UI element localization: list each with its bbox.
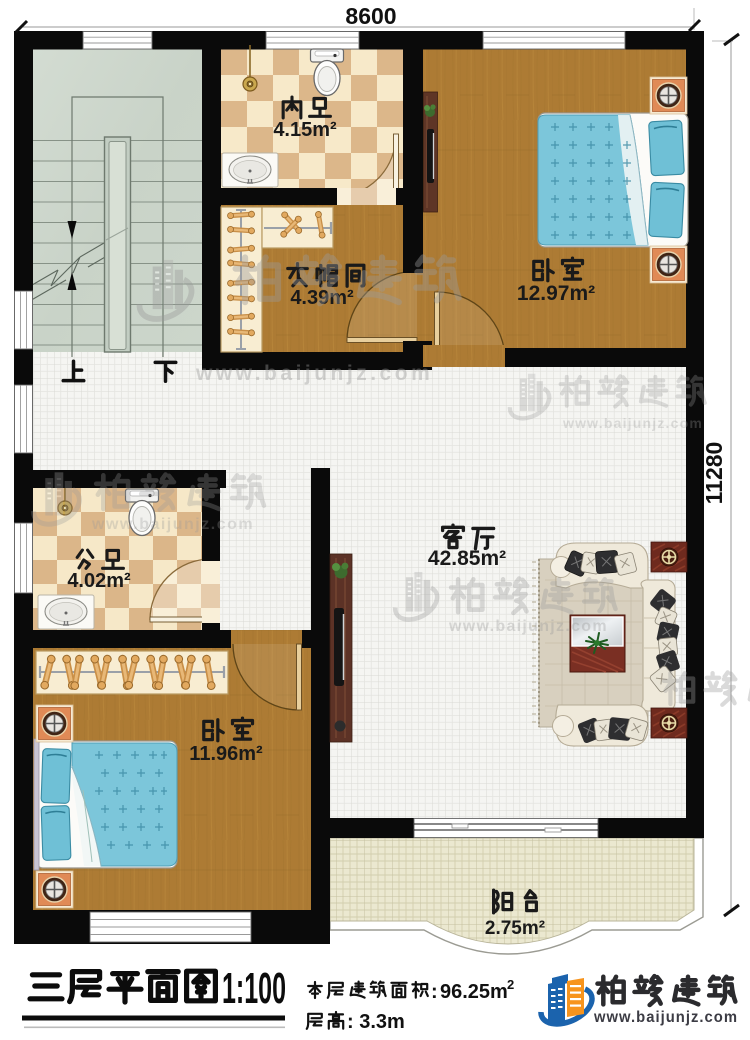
svg-text:4.15m²: 4.15m² (273, 119, 337, 141)
svg-text:2.75m²: 2.75m² (485, 918, 545, 939)
svg-text:www.baijunjz.com: www.baijunjz.com (593, 1009, 738, 1026)
svg-text:96.25m: 96.25m (440, 981, 508, 1003)
svg-text:www.baijunjz.com: www.baijunjz.com (91, 516, 254, 533)
svg-text:www.baijunjz.com: www.baijunjz.com (448, 618, 608, 635)
svg-text:: 3.3m: : 3.3m (347, 1011, 405, 1033)
svg-text:1:100: 1:100 (222, 964, 286, 1013)
svg-text:11280: 11280 (701, 442, 727, 505)
svg-text:12.97m²: 12.97m² (517, 282, 595, 305)
svg-text:42.85m²: 42.85m² (428, 547, 506, 570)
svg-text:11.96m²: 11.96m² (189, 743, 263, 765)
svg-text:www.baijunjz.com: www.baijunjz.com (562, 415, 703, 431)
svg-text::: : (431, 981, 438, 1003)
svg-text:4.02m²: 4.02m² (67, 570, 131, 592)
svg-text:8600: 8600 (345, 3, 396, 29)
svg-text:2: 2 (507, 977, 514, 992)
svg-text:www.baijunjz.com: www.baijunjz.com (195, 362, 433, 385)
